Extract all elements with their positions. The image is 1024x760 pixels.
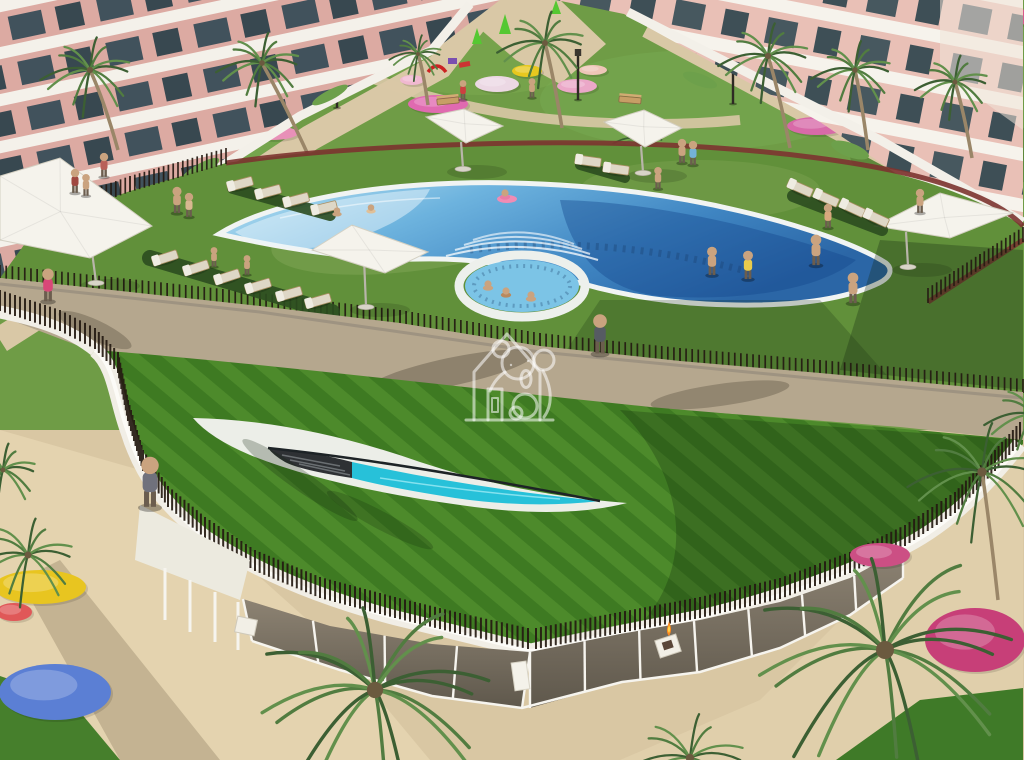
spa-water	[465, 260, 579, 312]
flower-bed-highlight	[0, 605, 21, 615]
resort-aerial-render	[0, 0, 1024, 760]
flower-bed-highlight	[582, 66, 599, 72]
flower-bed-highlight	[856, 545, 892, 558]
playground-item	[448, 58, 457, 64]
spa-pool	[459, 255, 585, 317]
clubhouse-door	[511, 661, 530, 691]
park-bench	[619, 93, 642, 104]
glass-mullion	[639, 631, 640, 680]
flower-bed-highlight	[561, 80, 585, 88]
planter	[235, 616, 258, 636]
flower-bed-highlight	[479, 78, 505, 87]
flower-bed-highlight	[10, 670, 77, 701]
logo-koala-eye	[510, 364, 512, 366]
logo-koala-eye	[527, 360, 529, 362]
rendered-image	[0, 0, 1024, 760]
